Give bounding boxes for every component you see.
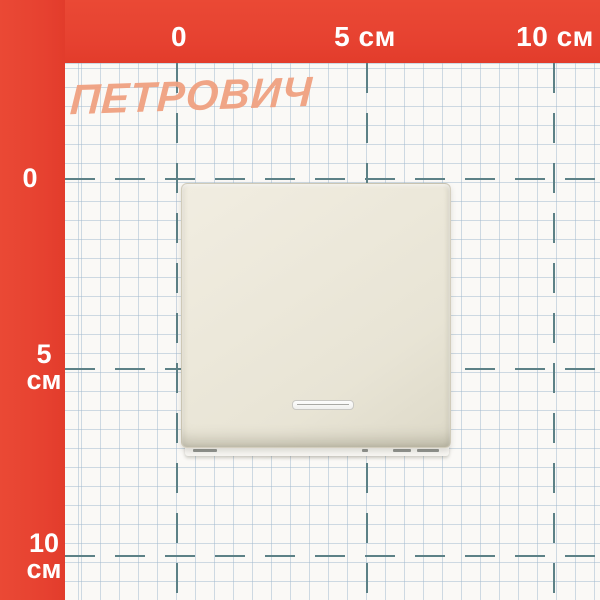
indicator-window-slot	[297, 404, 349, 405]
ruler-left-label-5-num: 5	[0, 341, 88, 367]
grid-major-vline-0cm	[176, 63, 178, 600]
ruler-left-label-5-unit: см	[0, 367, 88, 393]
ruler-left-label-5cm: 5 см	[0, 341, 88, 393]
ruler-top-band: 0 5 см 10 см	[0, 0, 600, 63]
mounting-tab	[393, 449, 411, 452]
product-photo: ПЕТРОВИЧ 0 5 см 10 см 0 5 см 10 см	[0, 0, 600, 600]
ruler-left-label-10-unit: см	[0, 556, 88, 582]
brand-watermark: ПЕТРОВИЧ	[69, 68, 314, 125]
switch-rocker	[181, 183, 451, 448]
mounting-tab	[417, 449, 439, 452]
grid-major-vline-10cm	[553, 63, 555, 600]
mounting-tab	[193, 449, 217, 452]
ruler-left-label-10-num: 10	[0, 530, 88, 556]
grid-major-hline-0cm	[65, 178, 600, 180]
light-switch	[181, 183, 451, 448]
ruler-left-label-0: 0	[0, 165, 74, 191]
ruler-top-label-0: 0	[171, 21, 187, 53]
ruler-top-label-5cm: 5 см	[334, 21, 396, 53]
ruler-left-label-10cm: 10 см	[0, 530, 88, 582]
mounting-tab	[362, 449, 368, 452]
ruler-left-band: 0 5 см 10 см	[0, 0, 65, 600]
ruler-top-label-10cm: 10 см	[516, 21, 594, 53]
grid-major-hline-10cm	[65, 555, 600, 557]
ruler-left-label-0-num: 0	[0, 165, 74, 191]
indicator-window	[292, 400, 354, 410]
